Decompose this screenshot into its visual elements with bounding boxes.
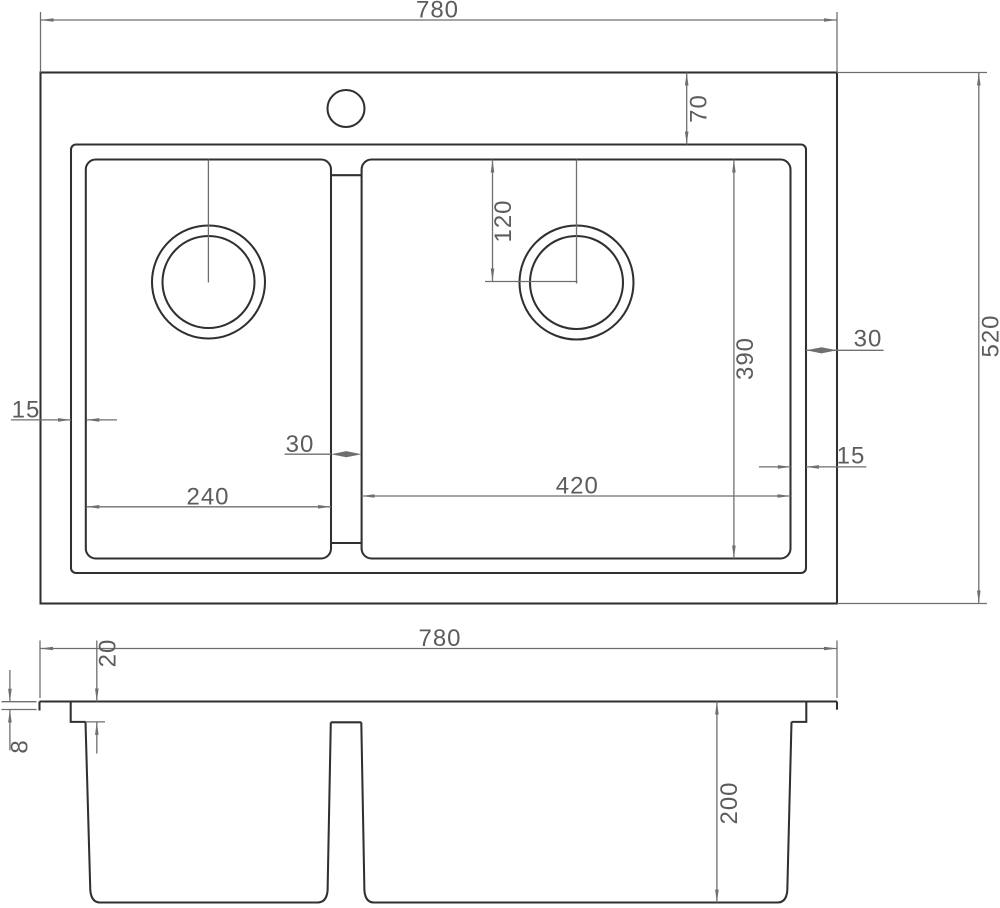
svg-text:780: 780 [416,0,459,24]
svg-text:20: 20 [95,639,122,668]
svg-text:240: 240 [186,483,229,510]
svg-text:200: 200 [716,781,743,824]
svg-text:390: 390 [732,337,759,380]
svg-text:30: 30 [854,326,883,353]
svg-text:15: 15 [837,443,866,470]
svg-text:780: 780 [418,625,461,652]
svg-text:120: 120 [490,199,517,242]
svg-text:8: 8 [7,739,34,753]
svg-text:420: 420 [556,472,599,499]
svg-text:30: 30 [286,431,315,458]
svg-text:15: 15 [12,396,41,423]
svg-text:70: 70 [686,94,713,123]
svg-text:520: 520 [978,314,1000,357]
